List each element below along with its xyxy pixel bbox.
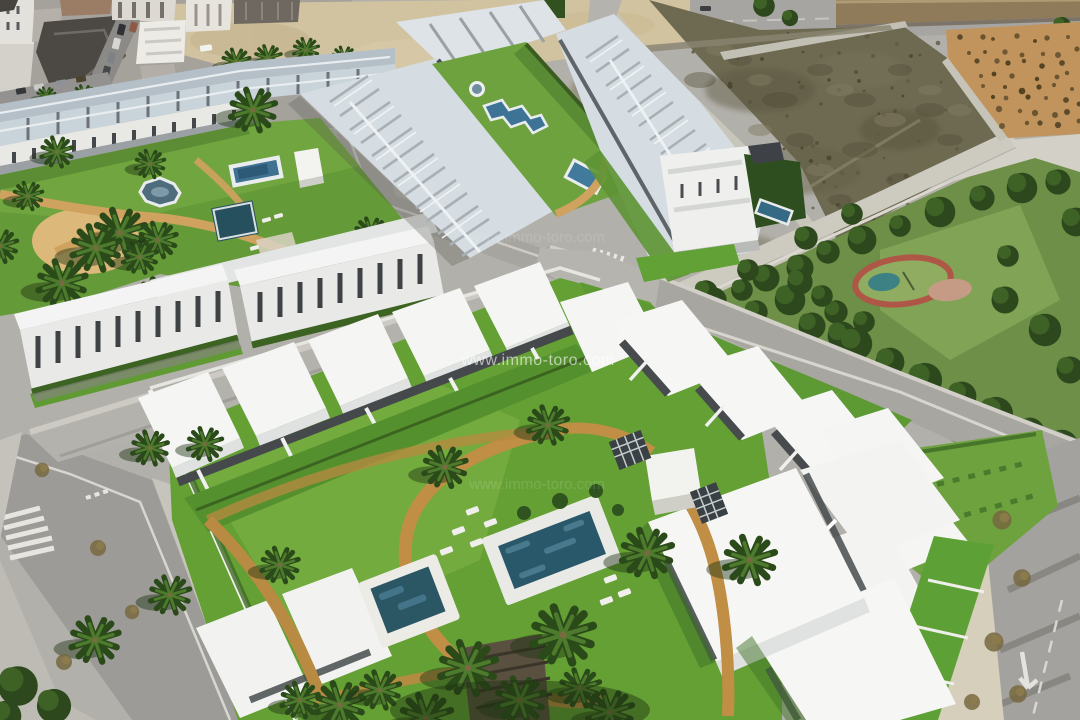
svg-text:www.immo-toro.com: www.immo-toro.com bbox=[460, 352, 614, 369]
svg-text:www.immo-toro.com: www.immo-toro.com bbox=[468, 476, 605, 493]
svg-text:www.immo-toro.com: www.immo-toro.com bbox=[468, 229, 605, 246]
